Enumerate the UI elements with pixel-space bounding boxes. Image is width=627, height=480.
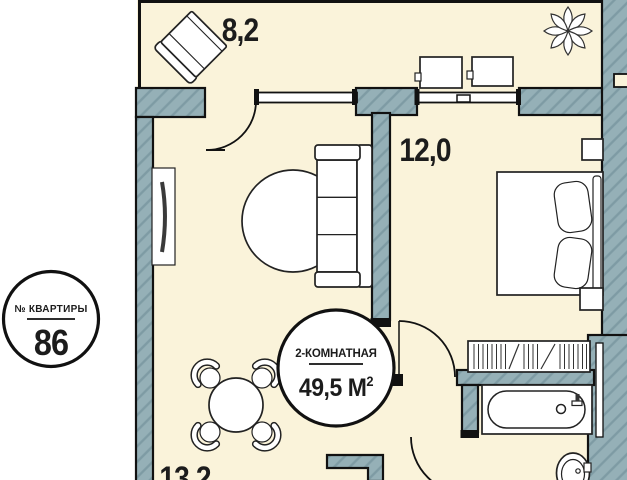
balcony-box-1 bbox=[420, 57, 462, 88]
window-cap bbox=[352, 89, 357, 105]
balcony-box-2 bbox=[472, 57, 513, 86]
window-living-room bbox=[257, 93, 357, 103]
apartment-type-badge: 2-КОМНАТНАЯ 49,5 М2 bbox=[278, 310, 394, 426]
apartment-badge-label: № КВАРТИРЫ bbox=[14, 304, 87, 315]
floor-plan: 8,2 12,0 13,2 № КВАРТИРЫ 86 2-КОМНАТНАЯ … bbox=[0, 0, 627, 480]
wall-bedroom-divider bbox=[372, 113, 390, 320]
balcony-box-1-latch bbox=[415, 73, 421, 81]
bathtub bbox=[482, 385, 592, 434]
wall-shaft-slot bbox=[596, 343, 603, 437]
dining-table bbox=[209, 378, 263, 432]
apartment-number-badge: № КВАРТИРЫ 86 bbox=[4, 272, 99, 367]
living-area-label: 13,2 bbox=[159, 461, 210, 480]
apartment-area: 49,5 М2 bbox=[299, 374, 373, 403]
wall-stem-cap bbox=[461, 430, 480, 438]
sink-tap-icon bbox=[584, 463, 591, 472]
bedroom-area-label: 12,0 bbox=[399, 133, 450, 168]
wall-bathroom-stem bbox=[462, 385, 478, 432]
wall-top-left-block bbox=[136, 88, 205, 117]
headboard bbox=[593, 176, 601, 291]
window-cap bbox=[516, 89, 521, 105]
svg-text:13,2: 13,2 bbox=[159, 461, 210, 480]
wall-left bbox=[136, 117, 153, 480]
apartment-type: 2-КОМНАТНАЯ bbox=[295, 348, 377, 360]
wall-balcony-middle bbox=[356, 88, 417, 115]
wardrobe bbox=[468, 341, 590, 372]
nightstand bbox=[580, 288, 603, 310]
faucet-knob bbox=[576, 394, 580, 401]
wall-corner-notch bbox=[614, 74, 627, 87]
apartment-number: 86 bbox=[34, 323, 68, 363]
floor-plan-svg: 8,2 12,0 13,2 № КВАРТИРЫ 86 2-КОМНАТНАЯ … bbox=[0, 0, 627, 480]
wall-right-upper bbox=[602, 0, 627, 338]
faucet-icon bbox=[572, 401, 582, 406]
bed bbox=[497, 172, 603, 295]
balcony-box-2-latch bbox=[467, 71, 473, 79]
area-superscript: 2 bbox=[366, 374, 373, 390]
nightstand bbox=[582, 139, 603, 160]
svg-text:12,0: 12,0 bbox=[399, 133, 450, 168]
balcony-area-label: 8,2 bbox=[222, 13, 259, 48]
compass-rose-icon bbox=[544, 7, 592, 55]
drain bbox=[557, 405, 566, 414]
window-center-tick bbox=[457, 95, 470, 102]
wall-right-lower bbox=[588, 335, 627, 480]
sofa bbox=[315, 145, 372, 287]
area-value: 49,5 М bbox=[299, 374, 367, 402]
pillow bbox=[553, 236, 594, 290]
pillow bbox=[553, 180, 594, 234]
window-cap bbox=[415, 89, 420, 105]
svg-text:8,2: 8,2 bbox=[222, 13, 259, 48]
